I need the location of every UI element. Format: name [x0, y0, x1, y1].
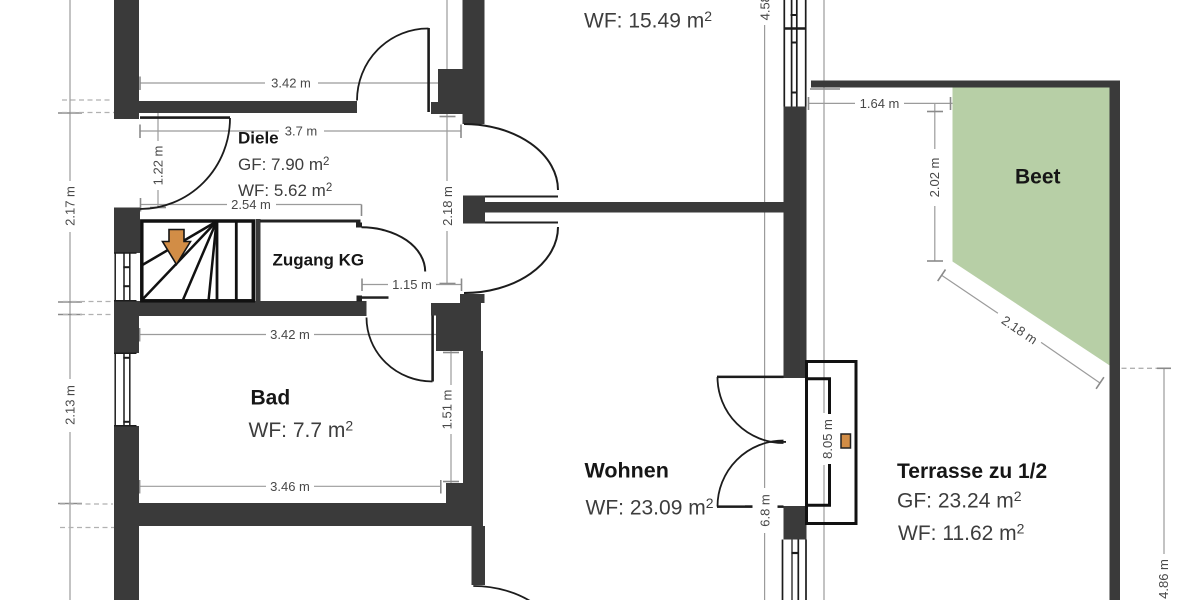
svg-text:WF: 5.62 m2: WF: 5.62 m2	[238, 181, 332, 200]
svg-text:8.05 m: 8.05 m	[820, 419, 835, 459]
svg-text:Beet: Beet	[1015, 166, 1061, 189]
svg-text:3.46 m: 3.46 m	[270, 479, 310, 494]
svg-text:Zugang KG: Zugang KG	[273, 251, 365, 270]
svg-text:4.86 m: 4.86 m	[1156, 559, 1171, 599]
svg-text:6.8 m: 6.8 m	[758, 494, 773, 527]
svg-text:1.51 m: 1.51 m	[440, 390, 455, 430]
svg-text:1.15 m: 1.15 m	[392, 277, 432, 292]
svg-text:WF: 15.49 m2: WF: 15.49 m2	[584, 8, 712, 33]
svg-text:GF: 7.90 m2: GF: 7.90 m2	[238, 155, 329, 174]
svg-text:4.58 m: 4.58 m	[758, 0, 773, 20]
svg-text:WF: 7.7 m2: WF: 7.7 m2	[249, 418, 354, 443]
svg-text:2.17 m: 2.17 m	[63, 186, 78, 226]
svg-text:2.02 m: 2.02 m	[927, 158, 942, 198]
svg-text:2.18 m: 2.18 m	[440, 186, 455, 226]
svg-text:3.7 m: 3.7 m	[285, 124, 318, 139]
svg-text:2.13 m: 2.13 m	[63, 385, 78, 425]
svg-text:Wohnen: Wohnen	[585, 459, 669, 483]
svg-text:3.42 m: 3.42 m	[270, 327, 310, 342]
svg-text:1.22 m: 1.22 m	[151, 146, 166, 186]
svg-text:WF: 23.09 m2: WF: 23.09 m2	[586, 495, 714, 520]
svg-text:Diele: Diele	[238, 129, 279, 148]
svg-text:GF: 23.24 m2: GF: 23.24 m2	[897, 488, 1022, 513]
svg-text:Terrasse zu 1/2: Terrasse zu 1/2	[897, 460, 1047, 483]
svg-text:3.42 m: 3.42 m	[271, 76, 311, 91]
svg-text:WF: 11.62 m2: WF: 11.62 m2	[898, 521, 1025, 546]
svg-text:Bad: Bad	[251, 387, 291, 410]
svg-text:1.64 m: 1.64 m	[860, 96, 900, 111]
